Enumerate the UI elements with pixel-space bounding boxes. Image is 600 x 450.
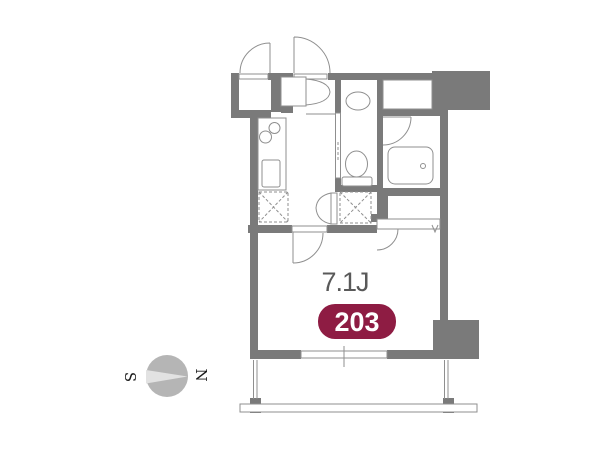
compass-south-label: S	[121, 372, 139, 382]
main-room-door-swing-icon	[293, 232, 323, 263]
shoe-cabinet	[281, 77, 306, 106]
wall-bottom-left	[250, 350, 301, 359]
corridor-door-swing-icon	[377, 229, 398, 250]
balcony-side-rail-left	[254, 360, 258, 399]
corridor-opening	[377, 219, 440, 229]
balcony-side-rail-right	[445, 360, 449, 399]
bathroom-door-swing-icon	[383, 117, 411, 145]
pillar-bottom-right	[433, 320, 479, 359]
bathtub-icon	[388, 147, 433, 184]
wall-toilet-bath-divider	[377, 73, 383, 192]
unit-number: 203	[334, 307, 379, 337]
entrance-door-swing-icon	[294, 37, 330, 73]
kitchen-area	[258, 118, 288, 222]
trunk-room-door-sill	[239, 74, 268, 79]
bathroom-storage	[383, 80, 432, 109]
toilet-bowl-icon	[346, 151, 368, 177]
wall-toilet-left-top	[335, 77, 341, 115]
main-room-door-panel	[292, 226, 327, 232]
wall-bath-bottom	[383, 188, 440, 196]
unit-number-badge: 203	[318, 304, 396, 339]
washer-closet-double-door-icon	[316, 193, 331, 224]
wall-left-main	[250, 112, 258, 359]
room-size-label: 7.1J	[321, 267, 368, 297]
wall-hall-bottom-left	[248, 225, 292, 233]
pillar-top-right	[432, 71, 490, 110]
wall-hall-bottom-right	[327, 225, 377, 233]
toilet-tank-icon	[342, 177, 372, 186]
washbasin-icon	[346, 92, 370, 110]
washer-closet	[316, 192, 371, 224]
shoe-cabinet-double-door-icon	[306, 79, 330, 105]
balcony-railing	[240, 404, 477, 412]
wall-entrance-divider	[271, 77, 281, 112]
wall-shoebox-stub	[281, 106, 293, 113]
washer-closet-door-leaf	[331, 193, 337, 224]
compass: S N	[121, 355, 210, 397]
floor-plan-page: 7.1J 203 S N	[0, 0, 600, 450]
wall-bottom-right	[387, 350, 433, 359]
compass-north-label: N	[192, 368, 210, 381]
toilet-sliding-door	[336, 113, 341, 178]
wall-bath-closet-bottom	[377, 109, 440, 116]
wall-right-main	[440, 110, 448, 320]
trunk-room-door-swing-icon	[240, 43, 270, 73]
bathroom	[383, 80, 433, 184]
floor-plan-drawing: 7.1J 203 S N	[0, 0, 600, 450]
